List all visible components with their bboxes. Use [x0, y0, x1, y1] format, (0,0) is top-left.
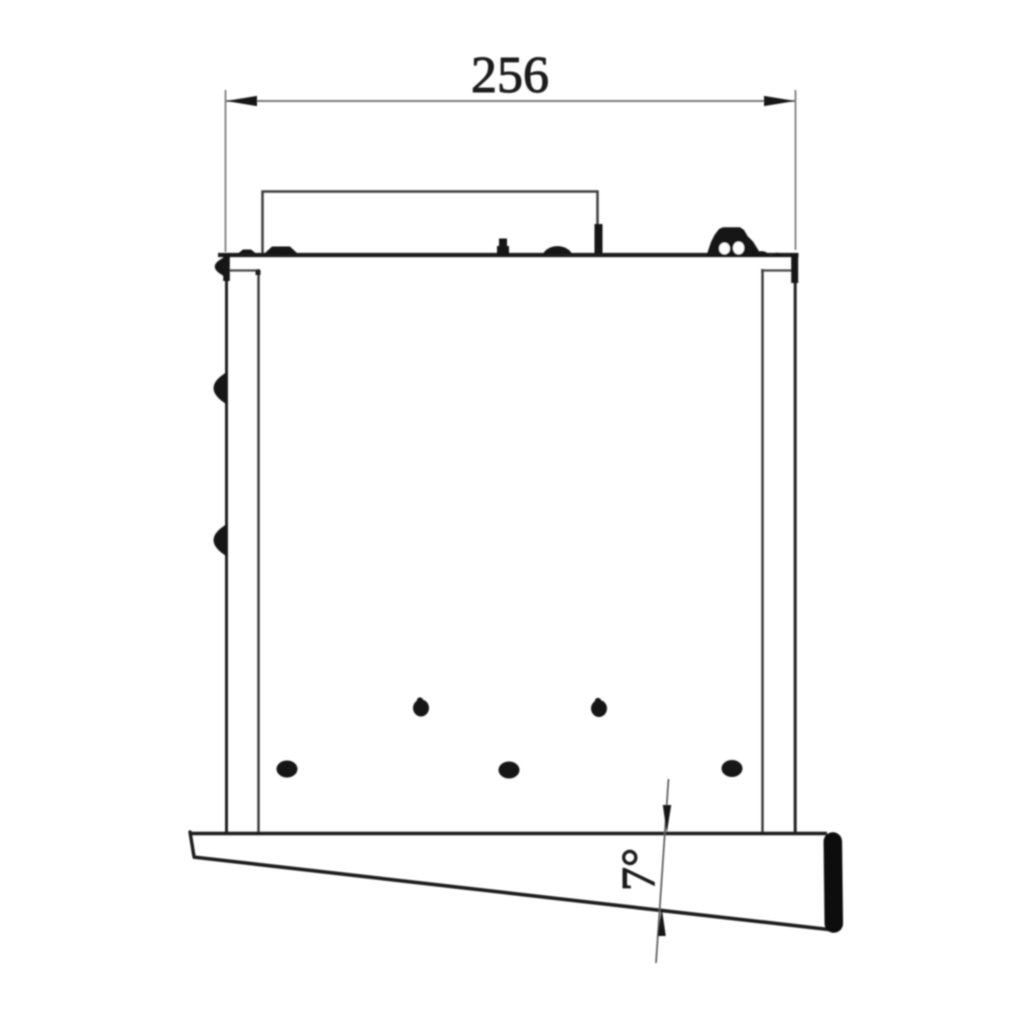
svg-text:256: 256 — [471, 47, 549, 104]
svg-text:7°: 7° — [613, 848, 666, 891]
